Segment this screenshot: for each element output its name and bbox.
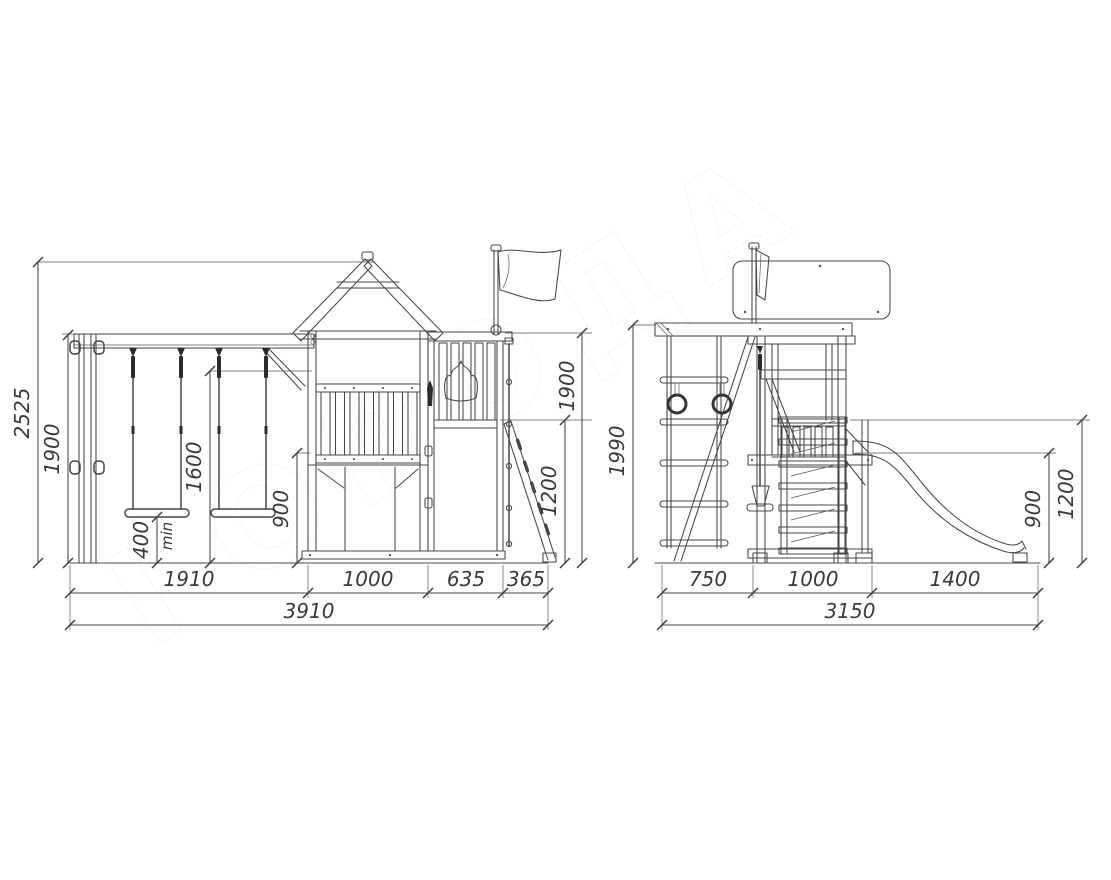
dim-front-deck-height: 900 [269,490,293,528]
dim-side-overall-height: 1990 [605,426,629,477]
dim-side-seg3: 1400 [930,567,981,591]
blueprint-canvas: ГОРОДА [0,0,1111,880]
dim-side-seg1: 750 [689,567,727,591]
dim-front-overall-height: 2525 [10,388,34,439]
dim-side-seg2: 1000 [788,567,839,591]
dim-front-seat-height: 400 [129,521,153,559]
dim-side-slide-start-height: 900 [1021,490,1045,528]
blueprint-page: ГОРОДА [0,0,1111,880]
dim-side-total-width: 3150 [825,599,876,623]
dim-front-seg4: 365 [507,567,545,591]
dim-front-seg2: 1000 [343,567,394,591]
slide [846,420,1027,563]
dim-front-seat-note: min [158,522,176,550]
diagonal-brace-beam [674,337,755,561]
dim-front-beam-height: 1900 [40,424,64,475]
swing-post [79,334,96,563]
dim-side-platform-height: 1200 [1054,469,1078,520]
beam-brace [262,348,305,390]
dim-front-swing-clearance: 1600 [182,442,206,493]
dim-front-seg1: 1910 [164,567,215,591]
dim-front-ramp-top-height: 1200 [537,466,561,517]
dim-front-total-width: 3910 [284,599,335,623]
dim-front-tower-right-height: 1900 [555,361,579,412]
swing-beam [74,334,314,348]
dim-front-seg3: 635 [447,567,485,591]
swing-side [747,346,773,511]
